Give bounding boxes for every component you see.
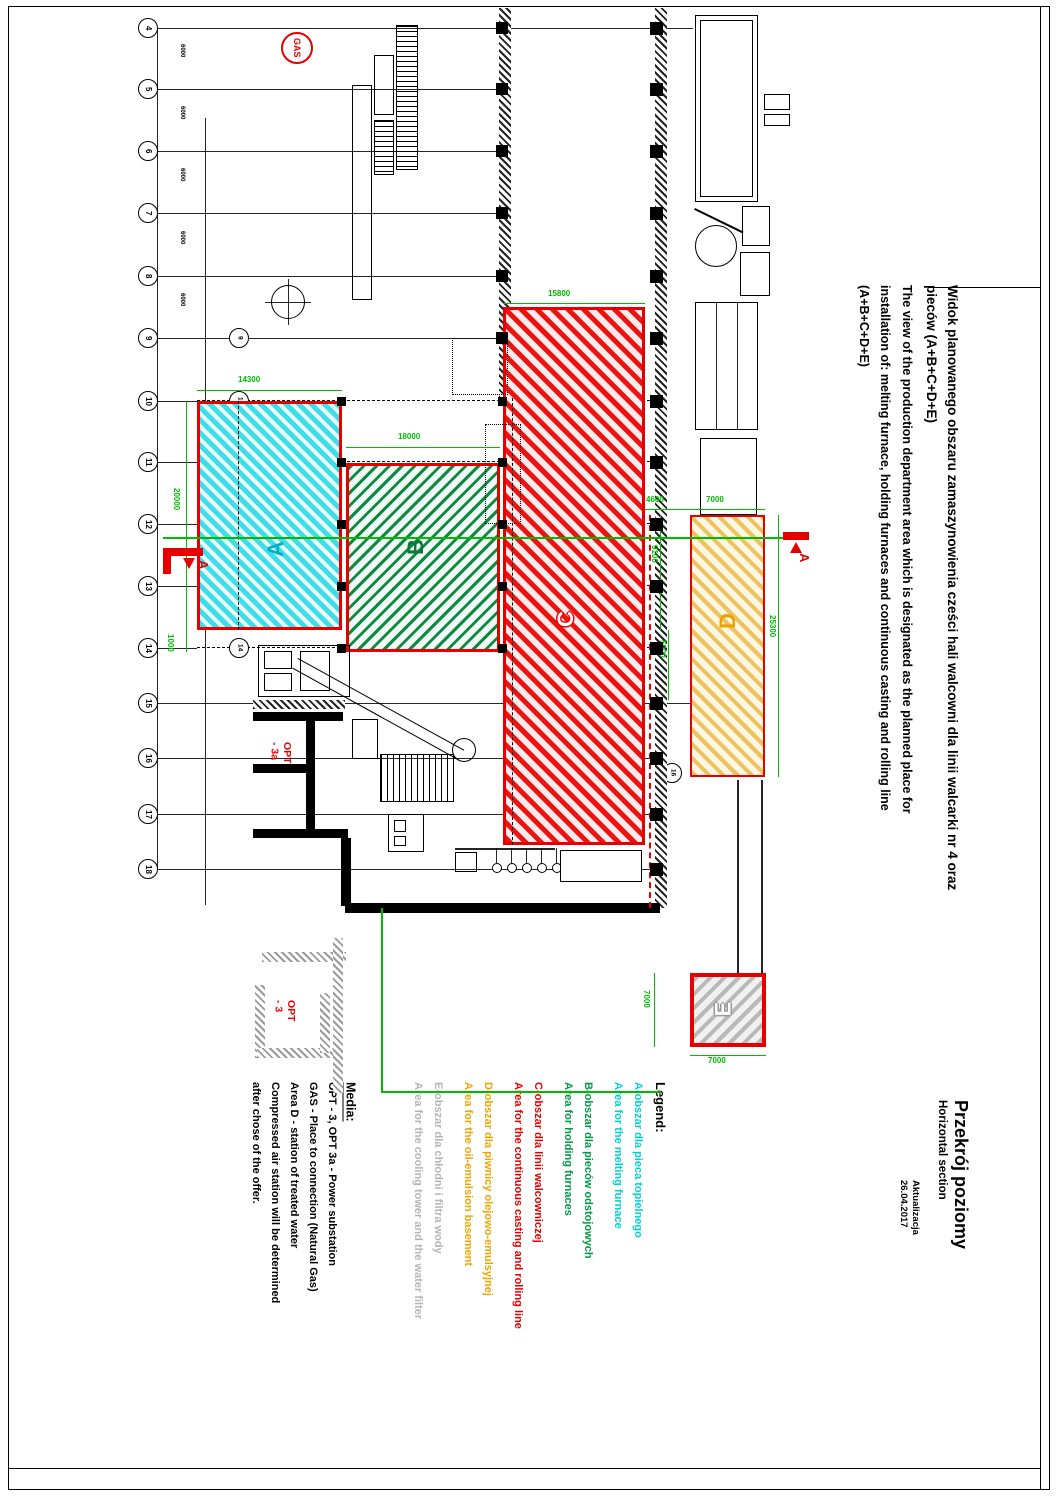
grid-row-line xyxy=(157,89,499,90)
title-polish-1: Widok planowanego obszaru zamaszynowieni… xyxy=(945,285,960,1025)
section-marker-left-stub xyxy=(163,548,171,574)
area-d-oil-emulsion-basement xyxy=(690,515,765,777)
dim-line-cd-gap xyxy=(645,509,690,510)
opt3a-label: OPT - 3a xyxy=(268,742,293,764)
grid-bubble-9: 9 xyxy=(138,328,158,348)
opt3a-wall-top xyxy=(253,712,343,721)
section-cut-line xyxy=(163,537,803,539)
furnace-inner-3 xyxy=(264,673,292,691)
manifold-drop-1 xyxy=(496,848,497,863)
grid-bubble-number: 4 xyxy=(144,26,152,30)
roof-monitor xyxy=(695,302,758,430)
building-rect-3 xyxy=(740,252,770,296)
dimension-text: 9100 xyxy=(650,545,658,563)
grid-bubble-number: 5 xyxy=(144,87,152,91)
dim-line-a-left2 xyxy=(186,630,187,652)
legend-item-c-pl: C-obszar dla linii walcowniczej xyxy=(532,1082,543,1243)
section-marker-right-arrow xyxy=(790,542,802,553)
dimension-text: 14300 xyxy=(238,376,260,384)
roof-monitor-div1 xyxy=(716,302,717,430)
machine-rect-4b xyxy=(394,836,406,846)
boundary-v xyxy=(381,908,383,1093)
dimension-text: 15800 xyxy=(548,290,570,298)
legend-item-d-pl: D-obszar dla piwnicy olejowo-emulsyjnej xyxy=(482,1082,493,1296)
column-square xyxy=(650,145,663,158)
manifold-box xyxy=(455,852,477,872)
corridor-line-1 xyxy=(737,780,739,973)
opt3a-wall-bottom xyxy=(253,829,348,838)
dimension-text: 6000 xyxy=(179,293,185,306)
machine-rect-1 xyxy=(352,85,372,300)
dim-line-a-left xyxy=(186,401,187,630)
legend-heading: Legend: xyxy=(654,1082,667,1133)
dim-line-a-top xyxy=(197,390,342,391)
grid-row-line xyxy=(157,151,499,152)
column-square xyxy=(496,22,508,34)
grid-bubble-10: 10 xyxy=(138,391,158,411)
column-square xyxy=(650,22,663,35)
grid-bubble-8: 8 xyxy=(138,266,158,286)
section-marker-right-bar xyxy=(783,532,809,540)
column-square xyxy=(496,270,508,282)
area-c-rolling-line xyxy=(503,307,645,845)
dimension-text: 4600 xyxy=(646,496,664,504)
grid-bubble-number: 8 xyxy=(144,274,152,278)
grid-bubble-16: 16 xyxy=(138,748,158,768)
grid-row-line xyxy=(157,524,197,525)
legend-item-e-en: Area for the cooling tower and the water… xyxy=(412,1082,423,1319)
grate-platform xyxy=(380,754,454,802)
column-square xyxy=(496,332,508,344)
title-polish-2: pieców (A+B+C+D+E) xyxy=(924,285,939,1025)
equipment-dotted-2 xyxy=(485,424,521,524)
red-dashed-edge xyxy=(649,515,651,908)
grid-bubble-15: 15 xyxy=(138,693,158,713)
dim-line-d-right xyxy=(778,515,779,777)
column-square xyxy=(498,520,507,529)
machine-rect-2 xyxy=(374,55,394,115)
inner-grid-bubble-14: 14 xyxy=(229,638,249,658)
manifold-drop-3 xyxy=(526,848,527,863)
grid-bubble-number: 17 xyxy=(144,810,152,819)
building-rect-6 xyxy=(764,114,790,126)
building-rect-2 xyxy=(742,206,770,246)
media-line-4: Compressed air station will be determine… xyxy=(269,1082,280,1303)
column-square xyxy=(650,518,663,531)
column-square xyxy=(496,145,508,157)
opt3a-wall-vert xyxy=(306,712,315,838)
column-square xyxy=(337,458,346,467)
grid-bubble-4: 4 xyxy=(138,18,158,38)
valve-4 xyxy=(537,863,547,873)
media-line-5: after chose of the offer. xyxy=(250,1082,261,1204)
boundary-h xyxy=(381,1091,661,1093)
stairs-2 xyxy=(374,120,394,175)
column-square xyxy=(650,642,663,655)
valve-2 xyxy=(507,863,517,873)
grid-bubble-number: 18 xyxy=(144,865,152,874)
title-block-divider xyxy=(1040,6,1041,1490)
legend-item-a-en: Area for the melting furnace xyxy=(612,1082,623,1229)
silo-circle xyxy=(695,225,737,267)
grid-bubble-number: 15 xyxy=(144,699,152,708)
column-square xyxy=(337,582,346,591)
opt3-wall-right xyxy=(333,938,343,1093)
area-b-holding-furnaces xyxy=(346,463,500,652)
area-e-label: E xyxy=(712,1002,734,1017)
grid-bubble-number: 11 xyxy=(144,458,152,466)
grid-bubble-7: 7 xyxy=(138,203,158,223)
column-square xyxy=(650,697,663,710)
dim-line-c-top xyxy=(503,303,645,304)
gas-marker: GAS xyxy=(281,32,313,64)
dimension-text: 25300 xyxy=(768,615,776,637)
grid-bubble-number: 16 xyxy=(144,754,152,763)
grid-row-line xyxy=(157,586,197,587)
column-square xyxy=(650,580,663,593)
dim-line-e-bottom xyxy=(690,1055,766,1056)
media-line-3: Area D - station of treated water xyxy=(288,1082,299,1248)
machine-rect-4a xyxy=(394,820,406,832)
grid-bubble-11: 11 xyxy=(138,452,158,472)
dimension-text: 1000 xyxy=(166,634,174,652)
grid-bubble-number: 9 xyxy=(236,336,243,340)
grid-row-line xyxy=(157,401,197,402)
grid-row-line xyxy=(157,648,197,649)
grid-bubble-number: 16 xyxy=(669,769,676,776)
manifold-drop-2 xyxy=(511,848,512,863)
column-square xyxy=(496,207,508,219)
dimension-text: 7000 xyxy=(708,1057,726,1065)
building-rect-inner xyxy=(700,20,753,197)
column-square xyxy=(498,397,507,406)
grid-bubble-5: 5 xyxy=(138,79,158,99)
grid-row-line xyxy=(157,213,499,214)
wall-bottom-horizontal xyxy=(345,903,660,913)
grid-bubble-number: 13 xyxy=(144,582,152,591)
media-heading: Media: xyxy=(344,1082,357,1122)
equipment-dotted-1 xyxy=(452,338,508,395)
section-title-pl: Przekrój poziomy xyxy=(950,1100,971,1430)
dimension-text: 6000 xyxy=(179,168,185,181)
grid-bubble-number: 6 xyxy=(144,149,152,153)
manifold-pipe xyxy=(455,848,555,850)
column-square xyxy=(650,395,663,408)
column-square xyxy=(650,83,663,96)
corridor-line-2 xyxy=(761,780,763,973)
opt3-label: OPT - 3 xyxy=(272,1000,297,1022)
column-square xyxy=(498,582,507,591)
manifold-drop-4 xyxy=(541,848,542,863)
furnace-inner-1 xyxy=(264,651,292,669)
dimension-text: 7000 xyxy=(642,990,650,1008)
conveyor-drum xyxy=(452,738,476,762)
dimension-text: 18000 xyxy=(398,433,420,441)
roof-monitor-div2 xyxy=(737,302,738,430)
wall-stub-vertical xyxy=(341,838,351,906)
drawing-sheet: Widok planowanego obszaru zamaszynowieni… xyxy=(0,0,1058,1497)
legend-item-b-en: Area for holding furnaces xyxy=(562,1082,573,1216)
column-square xyxy=(650,270,663,283)
grid-bubble-17: 17 xyxy=(138,804,158,824)
grid-row-line xyxy=(157,462,197,463)
opt3a-wall-hatched xyxy=(253,700,345,709)
column-square xyxy=(498,458,507,467)
grid-bubble-number: 14 xyxy=(236,644,243,651)
area-c-label: C xyxy=(555,611,577,627)
media-line-2: GAS - Place to connection (Natural Gas) xyxy=(307,1082,318,1292)
legend-item-b-pl: B-obszar dla pieców odstojowych xyxy=(582,1082,593,1259)
column-square xyxy=(650,808,663,821)
dim-line-d-left2 xyxy=(668,630,669,700)
valve-1 xyxy=(492,863,502,873)
dim-line-e-left xyxy=(654,973,655,1047)
title-english-1: The view of the production department ar… xyxy=(900,285,914,1025)
column-square xyxy=(337,644,346,653)
dimension-text: 6000 xyxy=(179,231,185,244)
column-square xyxy=(498,644,507,653)
dim-line-d-left1 xyxy=(660,515,661,630)
valve-3 xyxy=(522,863,532,873)
section-marker-left-letter: A xyxy=(196,560,211,569)
section-marker-right-letter: A xyxy=(797,553,812,562)
gas-label: GAS xyxy=(292,38,302,58)
section-marker-left-arrow xyxy=(183,558,195,569)
grid-bubble-number: 9 xyxy=(144,336,152,340)
media-line-1: OPT - 3, OPT 3a - Power substation xyxy=(326,1082,337,1266)
section-title-en: Horizontal section xyxy=(936,1100,948,1430)
dim-line-d-top xyxy=(690,509,765,510)
dimension-text: 6000 xyxy=(179,106,185,119)
grid-bubble-18: 18 xyxy=(138,859,158,879)
dimension-text: 20000 xyxy=(172,488,180,510)
bottom-strip-line xyxy=(8,1468,1040,1469)
column-square xyxy=(496,83,508,95)
machine-rect-5 xyxy=(560,850,642,882)
legend-item-d-en: Area for the oil-emulsion basement xyxy=(462,1082,473,1266)
legend-item-a-pl: A-obszar dla pieca topielnego xyxy=(632,1082,643,1238)
column-square xyxy=(650,207,663,220)
area-a-label: A xyxy=(265,541,287,557)
column-square xyxy=(650,456,663,469)
update-date: 26.04.2017 xyxy=(898,1180,909,1380)
grid-bubble-6: 6 xyxy=(138,141,158,161)
column-square xyxy=(337,520,346,529)
grid-bubble-number: 14 xyxy=(144,644,152,653)
opt3-wall-inner xyxy=(320,993,330,1053)
tank-cross-v xyxy=(288,279,289,325)
dim-line-b-top xyxy=(346,447,500,448)
dashed-line-area-a xyxy=(238,401,239,630)
stairs-1 xyxy=(396,25,418,170)
building-rect-5 xyxy=(764,94,790,110)
grid-bubble-12: 12 xyxy=(138,514,158,534)
area-d-label: D xyxy=(717,613,739,629)
dimension-text: 6000 xyxy=(179,44,185,57)
dimension-text: 7000 xyxy=(706,496,724,504)
column-square xyxy=(650,752,663,765)
legend-item-c-en: Area for the continuous casting and roll… xyxy=(512,1082,523,1329)
title-english-3: (A+B+C+D+E) xyxy=(857,285,871,1025)
area-a-melting-furnace xyxy=(197,401,342,630)
area-b-label: B xyxy=(405,539,427,555)
manifold-drop-5 xyxy=(556,848,557,863)
grid-bubble-14: 14 xyxy=(138,638,158,658)
column-square xyxy=(650,332,663,345)
grid-bubble-number: 10 xyxy=(144,397,152,406)
inner-grid-bubble-9: 9 xyxy=(229,328,249,348)
grid-row-line xyxy=(157,28,693,29)
machine-rect-3 xyxy=(352,719,378,759)
grid-bubble-number: 7 xyxy=(144,211,152,215)
column-square xyxy=(337,397,346,406)
legend-item-e-pl: E-obszar dla chłodni i filtra wody xyxy=(432,1082,443,1254)
grid-row-line xyxy=(157,338,499,339)
column-square xyxy=(650,863,663,876)
update-label: Aktualizacja xyxy=(910,1180,921,1380)
grid-bubble-number: 12 xyxy=(144,520,152,529)
grid-row-line xyxy=(157,276,499,277)
title-english-2: installation of: melting furnace, holdin… xyxy=(878,285,892,1025)
grid-bubble-13: 13 xyxy=(138,576,158,596)
